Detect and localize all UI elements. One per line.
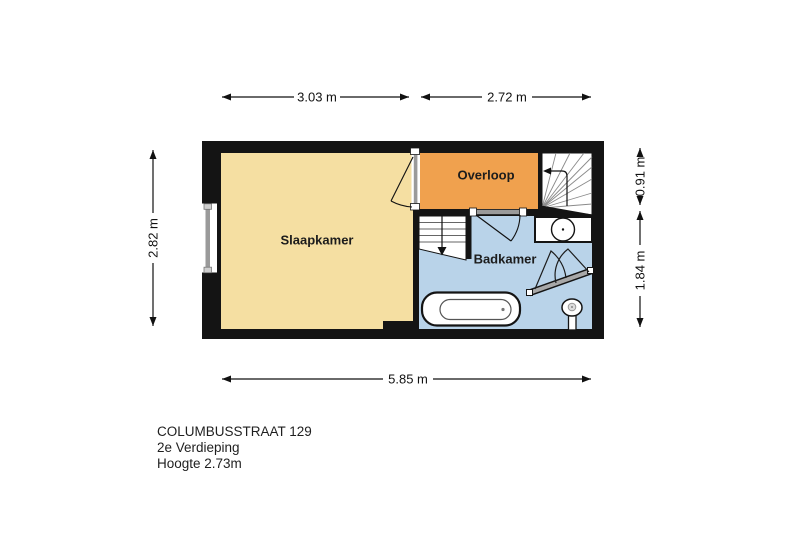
- dim-right-top: 0.91 m: [633, 148, 648, 205]
- dim-label-right-top: 0.91 m: [633, 157, 648, 197]
- dim-label-left: 2.82 m: [146, 218, 161, 258]
- stairs-up-icon: [538, 153, 592, 216]
- dim-label-right-bottom: 1.84 m: [633, 251, 648, 291]
- room-label-overloop: Overloop: [457, 168, 514, 183]
- room-label-badkamer: Badkamer: [474, 252, 537, 267]
- dim-top-left: 3.03 m: [222, 90, 409, 105]
- dim-label-top-right: 2.72 m: [487, 90, 527, 105]
- dim-label-bottom: 5.85 m: [388, 372, 428, 387]
- title-block: COLUMBUSSTRAAT 129 2e Verdieping Hoogte …: [157, 424, 312, 471]
- floor-plan-page: Slaapkamer Overloop Badkamer 3.03 m 2.72…: [0, 0, 792, 560]
- floor-plan-drawing: Slaapkamer Overloop Badkamer 3.03 m 2.72…: [0, 0, 792, 560]
- dim-label-top-left: 3.03 m: [297, 90, 337, 105]
- floor-line: 2e Verdieping: [157, 440, 240, 455]
- dim-top-right: 2.72 m: [421, 90, 591, 105]
- bathtub-icon: [422, 293, 520, 326]
- address-line: COLUMBUSSTRAAT 129: [157, 424, 312, 439]
- window-icon: [199, 204, 218, 273]
- dim-right-bottom: 1.84 m: [633, 211, 648, 327]
- room-label-slaapkamer: Slaapkamer: [281, 233, 354, 248]
- dim-left: 2.82 m: [146, 150, 161, 326]
- dim-bottom: 5.85 m: [222, 372, 591, 387]
- height-line: Hoogte 2.73m: [157, 456, 242, 471]
- sink-icon: [535, 217, 592, 242]
